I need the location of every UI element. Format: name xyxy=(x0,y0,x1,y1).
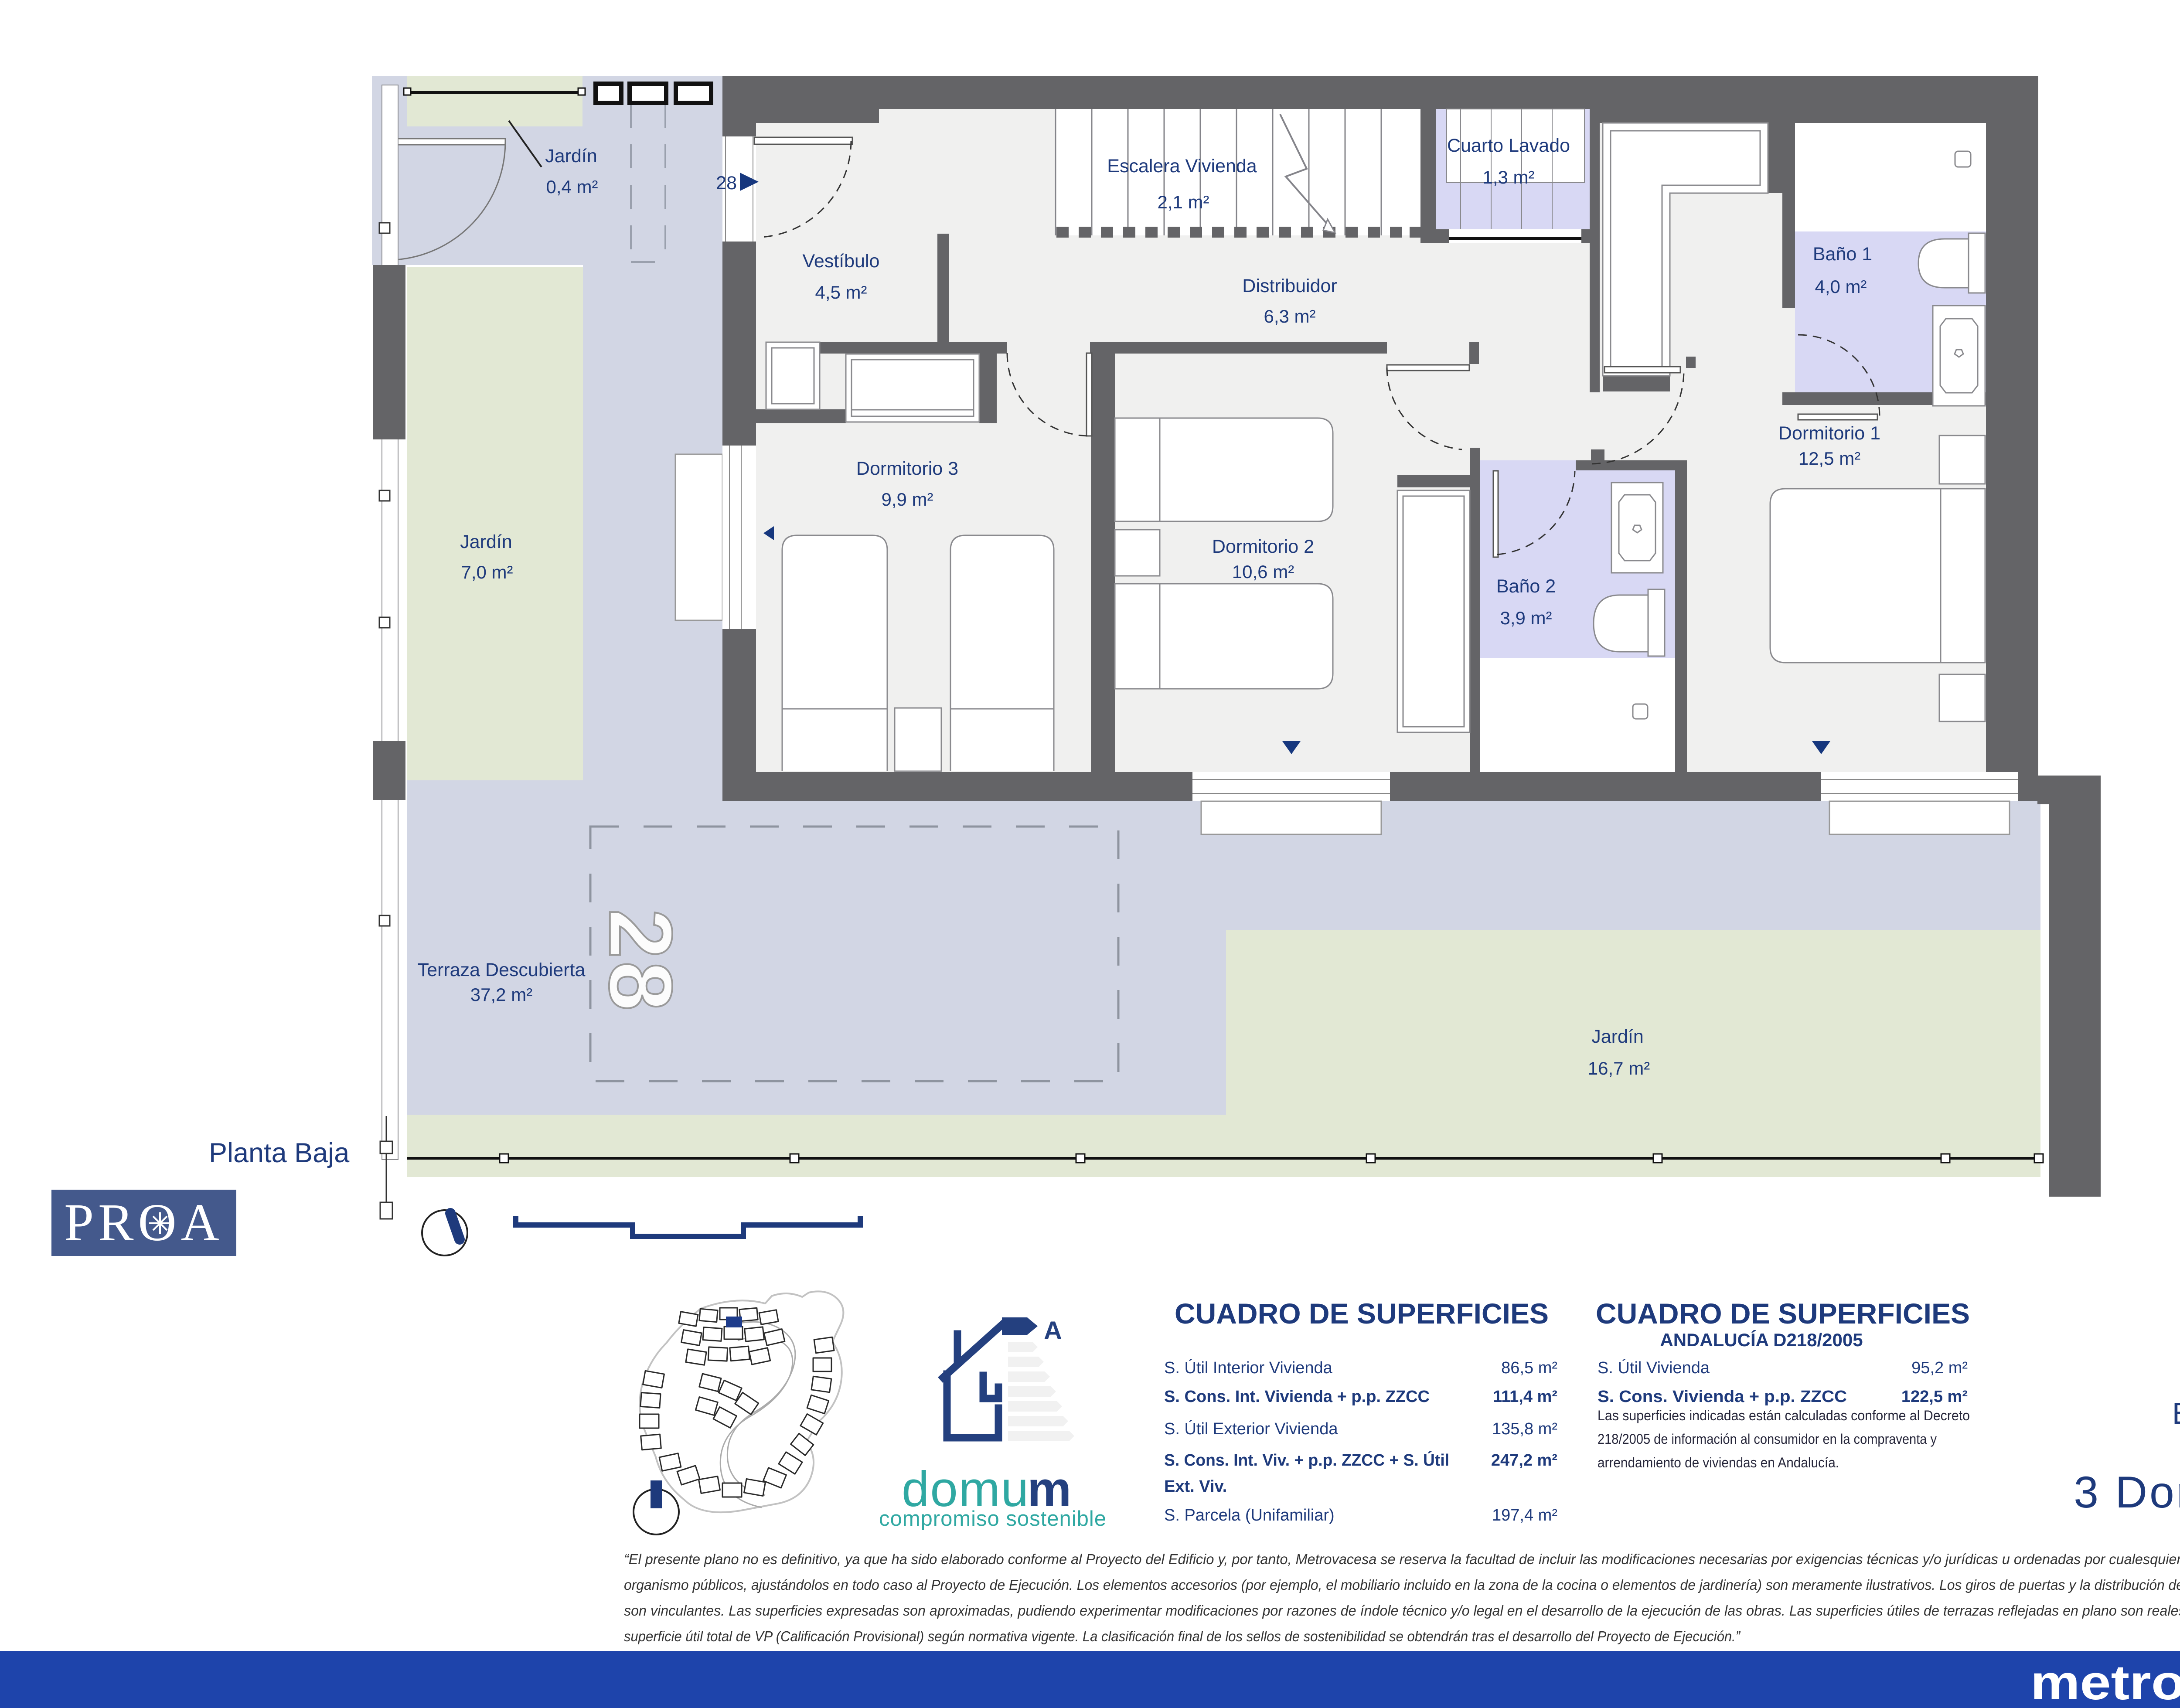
svg-text:9,9 m²: 9,9 m² xyxy=(881,489,933,510)
svg-text:PROA: PROA xyxy=(64,1193,223,1252)
svg-text:197,4 m²: 197,4 m² xyxy=(1492,1506,1557,1524)
svg-text:Escalera Vivienda: Escalera Vivienda xyxy=(1107,156,1257,177)
svg-text:B4 VIV 28: B4 VIV 28 xyxy=(2172,1396,2180,1430)
svg-text:4,5 m²: 4,5 m² xyxy=(815,282,867,303)
svg-text:Dormitorio 1: Dormitorio 1 xyxy=(1778,423,1880,444)
svg-text:7,0 m²: 7,0 m² xyxy=(461,562,513,582)
svg-text:16,7 m²: 16,7 m² xyxy=(1588,1058,1650,1079)
svg-text:6,3 m²: 6,3 m² xyxy=(1264,306,1315,327)
svg-text:S. Parcela (Unifamiliar): S. Parcela (Unifamiliar) xyxy=(1164,1506,1335,1524)
svg-text:28: 28 xyxy=(591,909,691,1014)
svg-text:Vestíbulo: Vestíbulo xyxy=(803,251,880,272)
svg-text:Dormitorio 2: Dormitorio 2 xyxy=(1212,536,1314,557)
svg-text:Planta Baja: Planta Baja xyxy=(209,1138,350,1168)
svg-text:135,8 m²: 135,8 m² xyxy=(1492,1420,1557,1438)
svg-text:3 Dormitorios: 3 Dormitorios xyxy=(2074,1467,2180,1517)
svg-text:1,3 m²: 1,3 m² xyxy=(1482,167,1534,187)
svg-text:111,4 m²: 111,4 m² xyxy=(1493,1388,1557,1406)
svg-text:12,5 m²: 12,5 m² xyxy=(1798,448,1860,469)
svg-text:4,0 m²: 4,0 m² xyxy=(1815,276,1867,297)
svg-text:10,6 m²: 10,6 m² xyxy=(1232,561,1294,582)
svg-text:organismo públicos, ajustándol: organismo públicos, ajustándolos en todo… xyxy=(624,1577,2180,1593)
svg-text:superficie útil total de VP (C: superficie útil total de VP (Calificació… xyxy=(624,1628,1741,1644)
svg-text:S. Cons. Int. Vivienda + p.p.: S. Cons. Int. Vivienda + p.p. ZZCC xyxy=(1164,1388,1430,1406)
svg-text:“El presente plano no es defin: “El presente plano no es definitivo, ya … xyxy=(624,1551,2180,1567)
svg-text:Las superficies indicadas está: Las superficies indicadas están calculad… xyxy=(1598,1408,1970,1423)
svg-text:arrendamiento de viviendas en: arrendamiento de viviendas en Andalucía. xyxy=(1598,1455,1839,1470)
svg-text:metrovacesa: metrovacesa xyxy=(2030,1655,2180,1708)
svg-text:37,2 m²: 37,2 m² xyxy=(470,984,532,1005)
svg-text:2,1 m²: 2,1 m² xyxy=(1157,192,1209,212)
svg-text:S. Útil Vivienda: S. Útil Vivienda xyxy=(1598,1358,1710,1377)
svg-text:CUADRO DE SUPERFICIES: CUADRO DE SUPERFICIES xyxy=(1175,1297,1549,1330)
svg-text:3,9 m²: 3,9 m² xyxy=(1500,608,1552,628)
svg-text:Baño 1: Baño 1 xyxy=(1813,244,1872,265)
svg-text:son vinculantes. Las superfici: son vinculantes. Las superficies expresa… xyxy=(624,1603,2180,1619)
svg-text:Terraza Descubierta: Terraza Descubierta xyxy=(418,959,586,980)
svg-text:218/2005 de información al con: 218/2005 de información al consumidor en… xyxy=(1598,1431,1937,1447)
svg-text:122,5 m²: 122,5 m² xyxy=(1901,1388,1968,1406)
svg-text:Jardín: Jardín xyxy=(1591,1026,1644,1047)
svg-text:S. Útil Exterior Vivienda: S. Útil Exterior Vivienda xyxy=(1164,1419,1338,1438)
svg-text:0,4 m²: 0,4 m² xyxy=(546,177,598,197)
svg-text:Baño 2: Baño 2 xyxy=(1496,576,1556,597)
svg-text:Dormitorio 3: Dormitorio 3 xyxy=(856,458,958,479)
svg-text:Distribuidor: Distribuidor xyxy=(1242,276,1337,296)
svg-text:A: A xyxy=(1044,1317,1062,1345)
svg-text:S. Cons. Vivienda + p.p. ZZCC: S. Cons. Vivienda + p.p. ZZCC xyxy=(1598,1388,1847,1406)
svg-text:Cuarto Lavado: Cuarto Lavado xyxy=(1447,135,1570,156)
svg-text:Jardín: Jardín xyxy=(545,146,597,167)
svg-text:S. Útil Interior Vivienda: S. Útil Interior Vivienda xyxy=(1164,1358,1333,1377)
svg-text:CUADRO DE SUPERFICIES: CUADRO DE SUPERFICIES xyxy=(1596,1297,1970,1330)
svg-text:compromiso sostenible: compromiso sostenible xyxy=(879,1507,1107,1531)
svg-text:ANDALUCÍA D218/2005: ANDALUCÍA D218/2005 xyxy=(1660,1330,1863,1350)
svg-text:95,2 m²: 95,2 m² xyxy=(1911,1359,1968,1377)
svg-text:28: 28 xyxy=(716,173,737,194)
svg-text:247,2 m²: 247,2 m² xyxy=(1491,1451,1557,1470)
svg-text:Ext. Viv.: Ext. Viv. xyxy=(1164,1477,1227,1496)
svg-text:S. Cons. Int. Viv. + p.p. ZZCC: S. Cons. Int. Viv. + p.p. ZZCC + S. Útil xyxy=(1164,1450,1449,1470)
svg-text:Jardín: Jardín xyxy=(460,531,512,552)
svg-text:86,5 m²: 86,5 m² xyxy=(1501,1359,1557,1377)
